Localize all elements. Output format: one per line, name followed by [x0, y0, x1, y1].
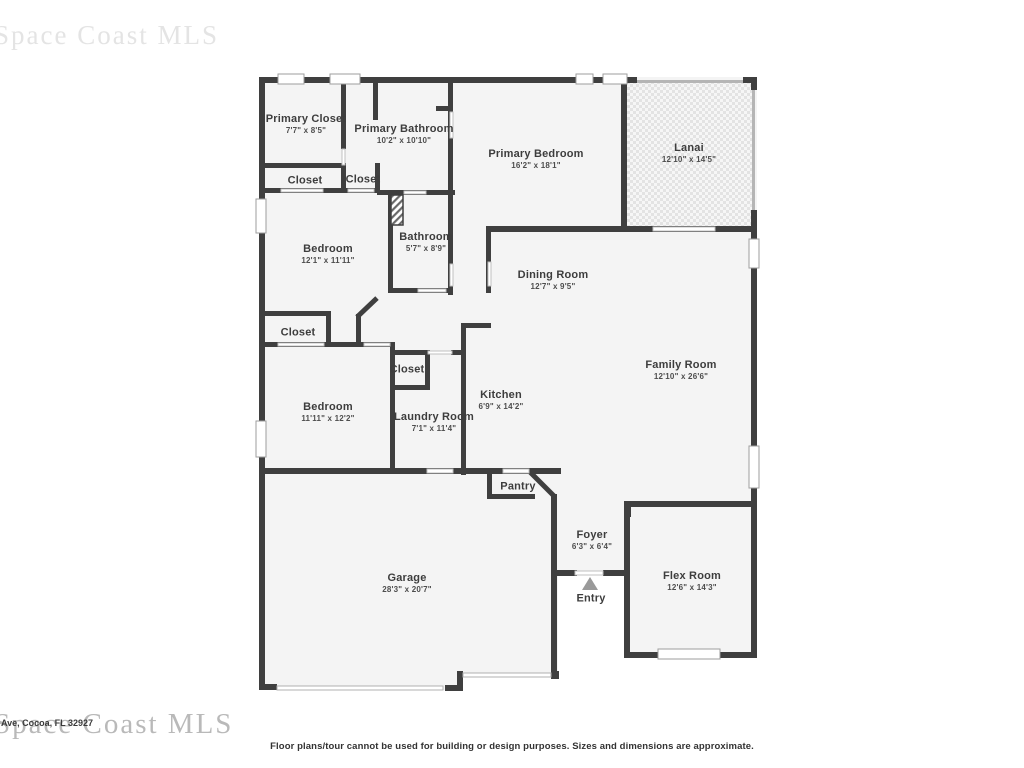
room-label-primary-bathroom: Primary Bathroom10'2" x 10'10"	[354, 123, 453, 145]
room-name: Bathroom	[399, 231, 453, 244]
room-dimensions: 10'2" x 10'10"	[354, 136, 453, 145]
room-name: Flex Room	[663, 570, 721, 583]
room-name: Dining Room	[518, 269, 589, 282]
room-name: Primary Closet	[266, 113, 346, 126]
room-name: Bedroom	[301, 243, 354, 256]
floor-plan-svg	[0, 0, 1024, 768]
room-dimensions: 28'3" x 20'7"	[382, 585, 432, 594]
room-dimensions: 7'7" x 8'5"	[266, 126, 346, 135]
room-name: Garage	[382, 572, 432, 585]
room-name: Primary Bathroom	[354, 123, 453, 136]
room-label-dining-room: Dining Room12'7" x 9'5"	[518, 269, 589, 291]
room-label-closet-hall-right: Closet	[346, 174, 381, 187]
room-label-garage: Garage28'3" x 20'7"	[382, 572, 432, 594]
room-dimensions: 5'7" x 8'9"	[399, 244, 453, 253]
room-dimensions: 16'2" x 18'1"	[488, 161, 583, 170]
room-label-entry: Entry	[576, 593, 605, 606]
room-label-pantry: Pantry	[500, 481, 535, 494]
room-name: Closet	[288, 175, 323, 188]
room-dimensions: 6'9" x 14'2"	[479, 402, 524, 411]
room-name: Primary Bedroom	[488, 148, 583, 161]
room-dimensions: 12'7" x 9'5"	[518, 282, 589, 291]
room-dimensions: 7'1" x 11'4"	[394, 424, 474, 433]
room-dimensions: 12'1" x 11'11"	[301, 256, 354, 265]
room-name: Bedroom	[301, 401, 354, 414]
room-label-primary-bedroom: Primary Bedroom16'2" x 18'1"	[488, 148, 583, 170]
room-label-lanai: Lanai12'10" x 14'5"	[662, 142, 716, 164]
room-name: Closet	[390, 364, 425, 377]
room-label-family-room: Family Room12'10" x 26'6"	[645, 359, 716, 381]
room-name: Lanai	[662, 142, 716, 155]
room-name: Pantry	[500, 481, 535, 494]
room-label-closet-hall-left: Closet	[288, 175, 323, 188]
room-label-kitchen: Kitchen6'9" x 14'2"	[479, 389, 524, 411]
room-dimensions: 11'11" x 12'2"	[301, 414, 354, 423]
room-name: Closet	[346, 174, 381, 187]
room-name: Family Room	[645, 359, 716, 372]
room-dimensions: 6'3" x 6'4"	[572, 542, 612, 551]
room-dimensions: 12'6" x 14'3"	[663, 583, 721, 592]
footer-disclaimer: Floor plans/tour cannot be used for buil…	[0, 741, 1024, 752]
room-label-bedroom-lower: Bedroom11'11" x 12'2"	[301, 401, 354, 423]
room-name: Entry	[576, 593, 605, 606]
room-label-primary-closet: Primary Closet7'7" x 8'5"	[266, 113, 346, 135]
room-label-bathroom: Bathroom5'7" x 8'9"	[399, 231, 453, 253]
room-label-closet-bedroom: Closet	[281, 327, 316, 340]
pocket-door-hatch	[391, 195, 403, 225]
room-name: Closet	[281, 327, 316, 340]
room-label-bedroom-upper: Bedroom12'1" x 11'11"	[301, 243, 354, 265]
room-name: Laundry Room	[394, 411, 474, 424]
room-name: Kitchen	[479, 389, 524, 402]
room-name: Foyer	[572, 529, 612, 542]
entry-direction-icon	[582, 577, 598, 590]
room-label-flex-room: Flex Room12'6" x 14'3"	[663, 570, 721, 592]
room-label-closet-laundry: Closet	[390, 364, 425, 377]
floor-plan-page: Space Coast MLS Space Coast MLS Ave, Coc…	[0, 0, 1024, 768]
room-label-foyer: Foyer6'3" x 6'4"	[572, 529, 612, 551]
room-label-laundry-room: Laundry Room7'1" x 11'4"	[394, 411, 474, 433]
room-dimensions: 12'10" x 26'6"	[645, 372, 716, 381]
room-dimensions: 12'10" x 14'5"	[662, 155, 716, 164]
